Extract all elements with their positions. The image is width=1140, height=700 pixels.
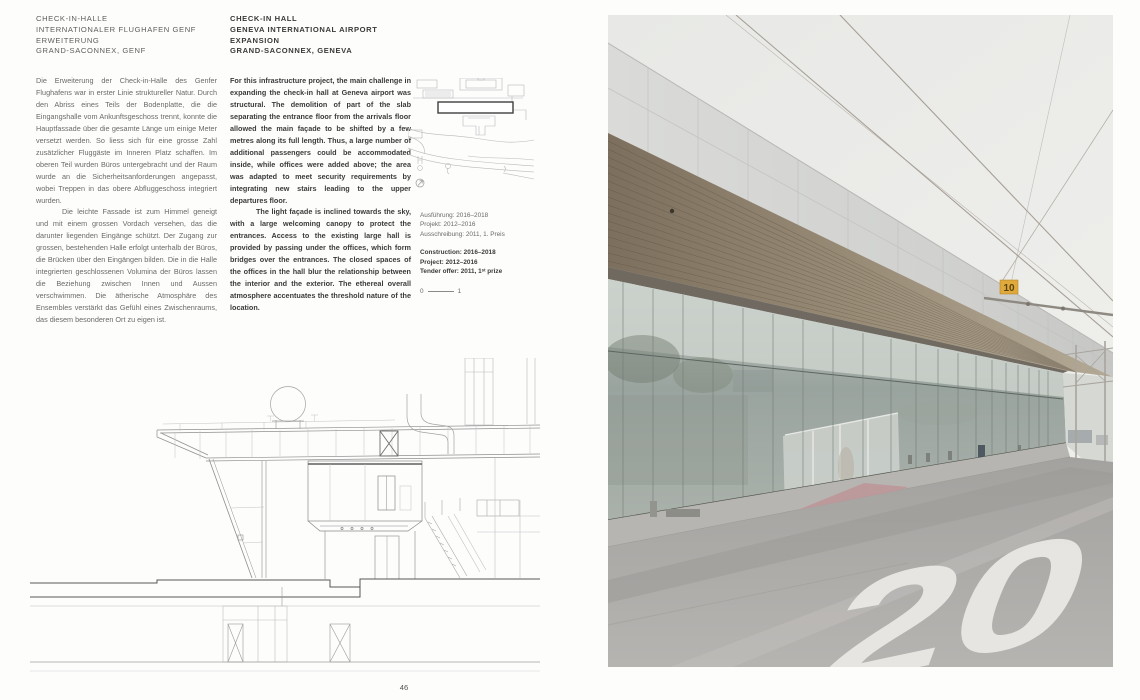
scale-bar: 0 1: [420, 288, 461, 295]
scale-end-label: 1: [458, 288, 462, 295]
title-en-line: GENEVA INTERNATIONAL AIRPORT: [230, 25, 377, 36]
title-en-line: CHECK-IN HALL: [230, 14, 377, 25]
scale-rule: [428, 291, 454, 292]
project-title-german: CHECK-IN-HALLE INTERNATIONALER FLUGHAFEN…: [36, 14, 196, 57]
bench: [666, 509, 700, 517]
book-spread: { "doc": { "page_number": "46", "titles"…: [0, 0, 1140, 700]
paragraph: The light façade is inclined towards the…: [230, 206, 411, 314]
title-de-line: ERWEITERUNG: [36, 36, 196, 47]
meta-de-line: Ausführung: 2016–2018: [420, 211, 505, 220]
route-number-label: 10: [1003, 283, 1015, 294]
paragraph: For this infrastructure project, the mai…: [230, 75, 411, 206]
paragraph: Die Erweiterung der Check-in-Halle des G…: [36, 75, 217, 206]
north-arrow-icon: [416, 179, 424, 187]
meta-de-line: Ausschreibung: 2011, 1. Preis: [420, 230, 505, 239]
site-plan-highlighted-building: [438, 102, 513, 113]
title-de-line: GRAND-SACONNEX, GENF: [36, 46, 196, 57]
site-plan-svg: [408, 78, 534, 202]
section-drawing: [30, 358, 540, 692]
body-text-german: Die Erweiterung der Check-in-Halle des G…: [36, 75, 217, 326]
meta-en-line: Construction: 2016–2018: [420, 248, 505, 257]
distant-bus: [1068, 430, 1092, 443]
page-number: 46: [386, 683, 422, 692]
trash-bin: [650, 501, 657, 517]
body-text-english: For this infrastructure project, the mai…: [230, 75, 411, 314]
meta-en-line: Project: 2012–2016: [420, 258, 505, 267]
meta-en-line: Tender offer: 2011, 1ˢᵗ prize: [420, 267, 505, 276]
project-metadata: Ausführung: 2016–2018 Projekt: 2012–2016…: [420, 211, 505, 276]
site-plan-drawing: [408, 78, 534, 202]
paragraph: Die leichte Fassade ist zum Himmel genei…: [36, 206, 217, 326]
title-en-line: EXPANSION: [230, 36, 377, 47]
title-de-line: CHECK-IN-HALLE: [36, 14, 196, 25]
photo-svg: 10 20: [608, 15, 1113, 667]
title-en-line: GRAND-SACONNEX, GENEVA: [230, 46, 377, 57]
airport-facade-photograph: 10 20: [608, 15, 1113, 667]
scale-start-label: 0: [420, 288, 424, 295]
section-drawing-svg: [30, 358, 540, 692]
project-title-english: CHECK-IN HALL GENEVA INTERNATIONAL AIRPO…: [230, 14, 377, 57]
title-de-line: INTERNATIONALER FLUGHAFEN GENF: [36, 25, 196, 36]
meta-de-line: Projekt: 2012–2016: [420, 220, 505, 229]
